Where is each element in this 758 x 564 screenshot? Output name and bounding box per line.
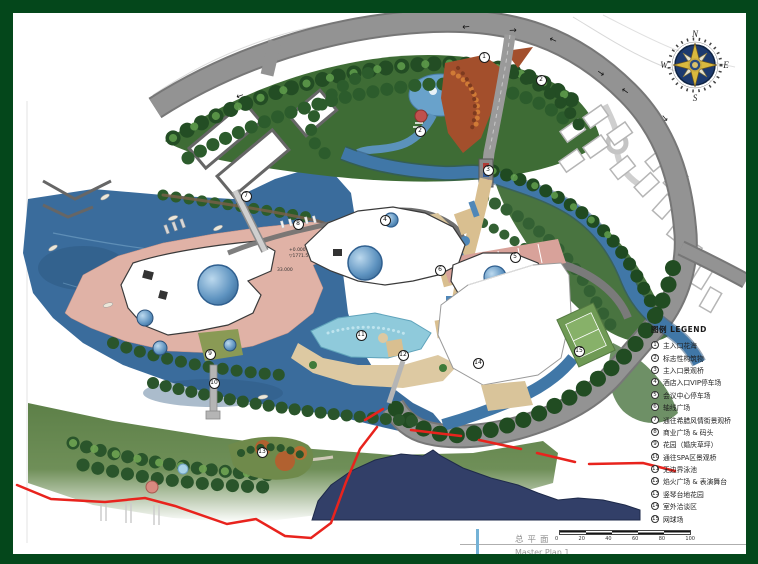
legend-item-label: 室外洽谈区	[663, 501, 697, 511]
scale-label: 60	[632, 536, 638, 542]
legend-item: 6 轴线广场	[651, 401, 746, 413]
legend-item: 8 商业广场 & 码头	[651, 426, 746, 438]
master-plan-drawing: → → → → → → → →	[13, 13, 746, 554]
title-block-blue-tick	[476, 529, 479, 554]
drawing-sheet: → → → → → → → →	[13, 13, 746, 554]
landmark-structure	[415, 110, 427, 122]
svg-text:+0.000: +0.000	[289, 247, 306, 253]
svg-text:33.000: 33.000	[277, 267, 293, 273]
legend-item-number: 13	[651, 490, 659, 498]
compass-rose: N E S W	[660, 29, 729, 103]
legend-item-label: 标志性构筑物	[663, 353, 704, 363]
scale-bar-labels: 020406080100	[555, 536, 695, 542]
small-pool	[153, 341, 167, 355]
legend-title: 图例 LEGEND	[651, 324, 746, 335]
legend-item: 5 会议中心停车场	[651, 389, 746, 401]
legend-item-number: 12	[651, 477, 659, 485]
outdoor-lounge-terrace	[481, 381, 533, 411]
compass-s-label: S	[693, 93, 698, 103]
legend-item-number: 15	[651, 515, 659, 523]
legend-item: 4 酒店入口VIP停车场	[651, 376, 746, 388]
legend-item-label: 主入口花海	[663, 340, 697, 350]
legend-item-number: 2	[651, 354, 659, 362]
legend-item: 13 竖琴台地花园	[651, 488, 746, 500]
scale-label: 80	[659, 536, 665, 542]
legend-item-label: 主入口景观桥	[663, 365, 704, 375]
legend-item-label: 酒店入口VIP停车场	[663, 377, 721, 387]
legend-item-label: 竖琴台地花园	[663, 489, 704, 499]
legend-item: 10 通往SPA区景观桥	[651, 451, 746, 463]
drawing-sheet-frame: → → → → → → → →	[0, 0, 758, 564]
spa-bridge	[210, 365, 217, 413]
svg-text:→: →	[509, 26, 518, 36]
legend-item: 1 主入口花海	[651, 339, 746, 351]
hotel-dome	[198, 265, 238, 305]
legend-item: 14 室外洽谈区	[651, 500, 746, 512]
legend-item: 7 通往希腊风情街景观桥	[651, 413, 746, 425]
legend-item-number: 14	[651, 502, 659, 510]
scale-label: 0	[555, 536, 558, 542]
scale-label: 100	[685, 536, 695, 542]
sheet-title-en: Master Plan 1	[515, 548, 570, 554]
legend-item-label: 轴线广场	[663, 402, 690, 412]
legend-item: 12 焰火广场 & 表演舞台	[651, 475, 746, 487]
legend-item-label: 通往希腊风情街景观桥	[663, 415, 731, 425]
legend-item-number: 8	[651, 428, 659, 436]
legend-item: 2 标志性构筑物	[651, 351, 746, 363]
fireworks-plaza	[386, 339, 405, 358]
title-block-divider	[460, 544, 746, 545]
legend-item-number: 11	[651, 465, 659, 473]
legend-item-number: 7	[651, 416, 659, 424]
scale-label: 40	[605, 536, 611, 542]
legend-item: 9 花园（婚庆草坪）	[651, 438, 746, 450]
svg-text:→: →	[461, 21, 470, 32]
small-pool	[137, 310, 153, 326]
svg-text:▽1771.5: ▽1771.5	[289, 253, 308, 259]
legend-item: 3 主入口景观桥	[651, 364, 746, 376]
small-pool	[224, 339, 236, 351]
legend-item-number: 6	[651, 403, 659, 411]
legend-items: 1 主入口花海 2 标志性构筑物 3 主入口景观桥 4 酒店入口VIP停车场	[651, 339, 746, 525]
scale-bar: 020406080100	[559, 530, 691, 542]
legend-item-label: 网球场	[663, 514, 683, 524]
compass-n-label: N	[691, 29, 699, 39]
legend-item-number: 10	[651, 453, 659, 461]
scale-label: 20	[579, 536, 585, 542]
legend-item-label: 花园（婚庆草坪）	[663, 439, 717, 449]
legend-item-label: 焰火广场 & 表演舞台	[663, 476, 727, 486]
legend-item-label: 通往SPA区景观桥	[663, 452, 716, 462]
scale-bar-graphic	[559, 530, 691, 535]
legend-item-label: 会议中心停车场	[663, 390, 711, 400]
legend-item-label: 商业广场 & 码头	[663, 427, 713, 437]
sheet-title-cn: 总平面	[515, 533, 553, 545]
legend-item-number: 9	[651, 440, 659, 448]
legend-item-number: 5	[651, 391, 659, 399]
legend-item-label: 无边界泳池	[663, 464, 697, 474]
compass-e-label: E	[722, 60, 729, 70]
legend-item-number: 3	[651, 366, 659, 374]
legend-item: 11 无边界泳池	[651, 463, 746, 475]
legend-item: 15 网球场	[651, 512, 746, 524]
legend-item-number: 4	[651, 378, 659, 386]
legend: 图例 LEGEND 1 主入口花海 2 标志性构筑物 3 主入口景观桥	[651, 324, 746, 525]
legend-item-number: 1	[651, 341, 659, 349]
